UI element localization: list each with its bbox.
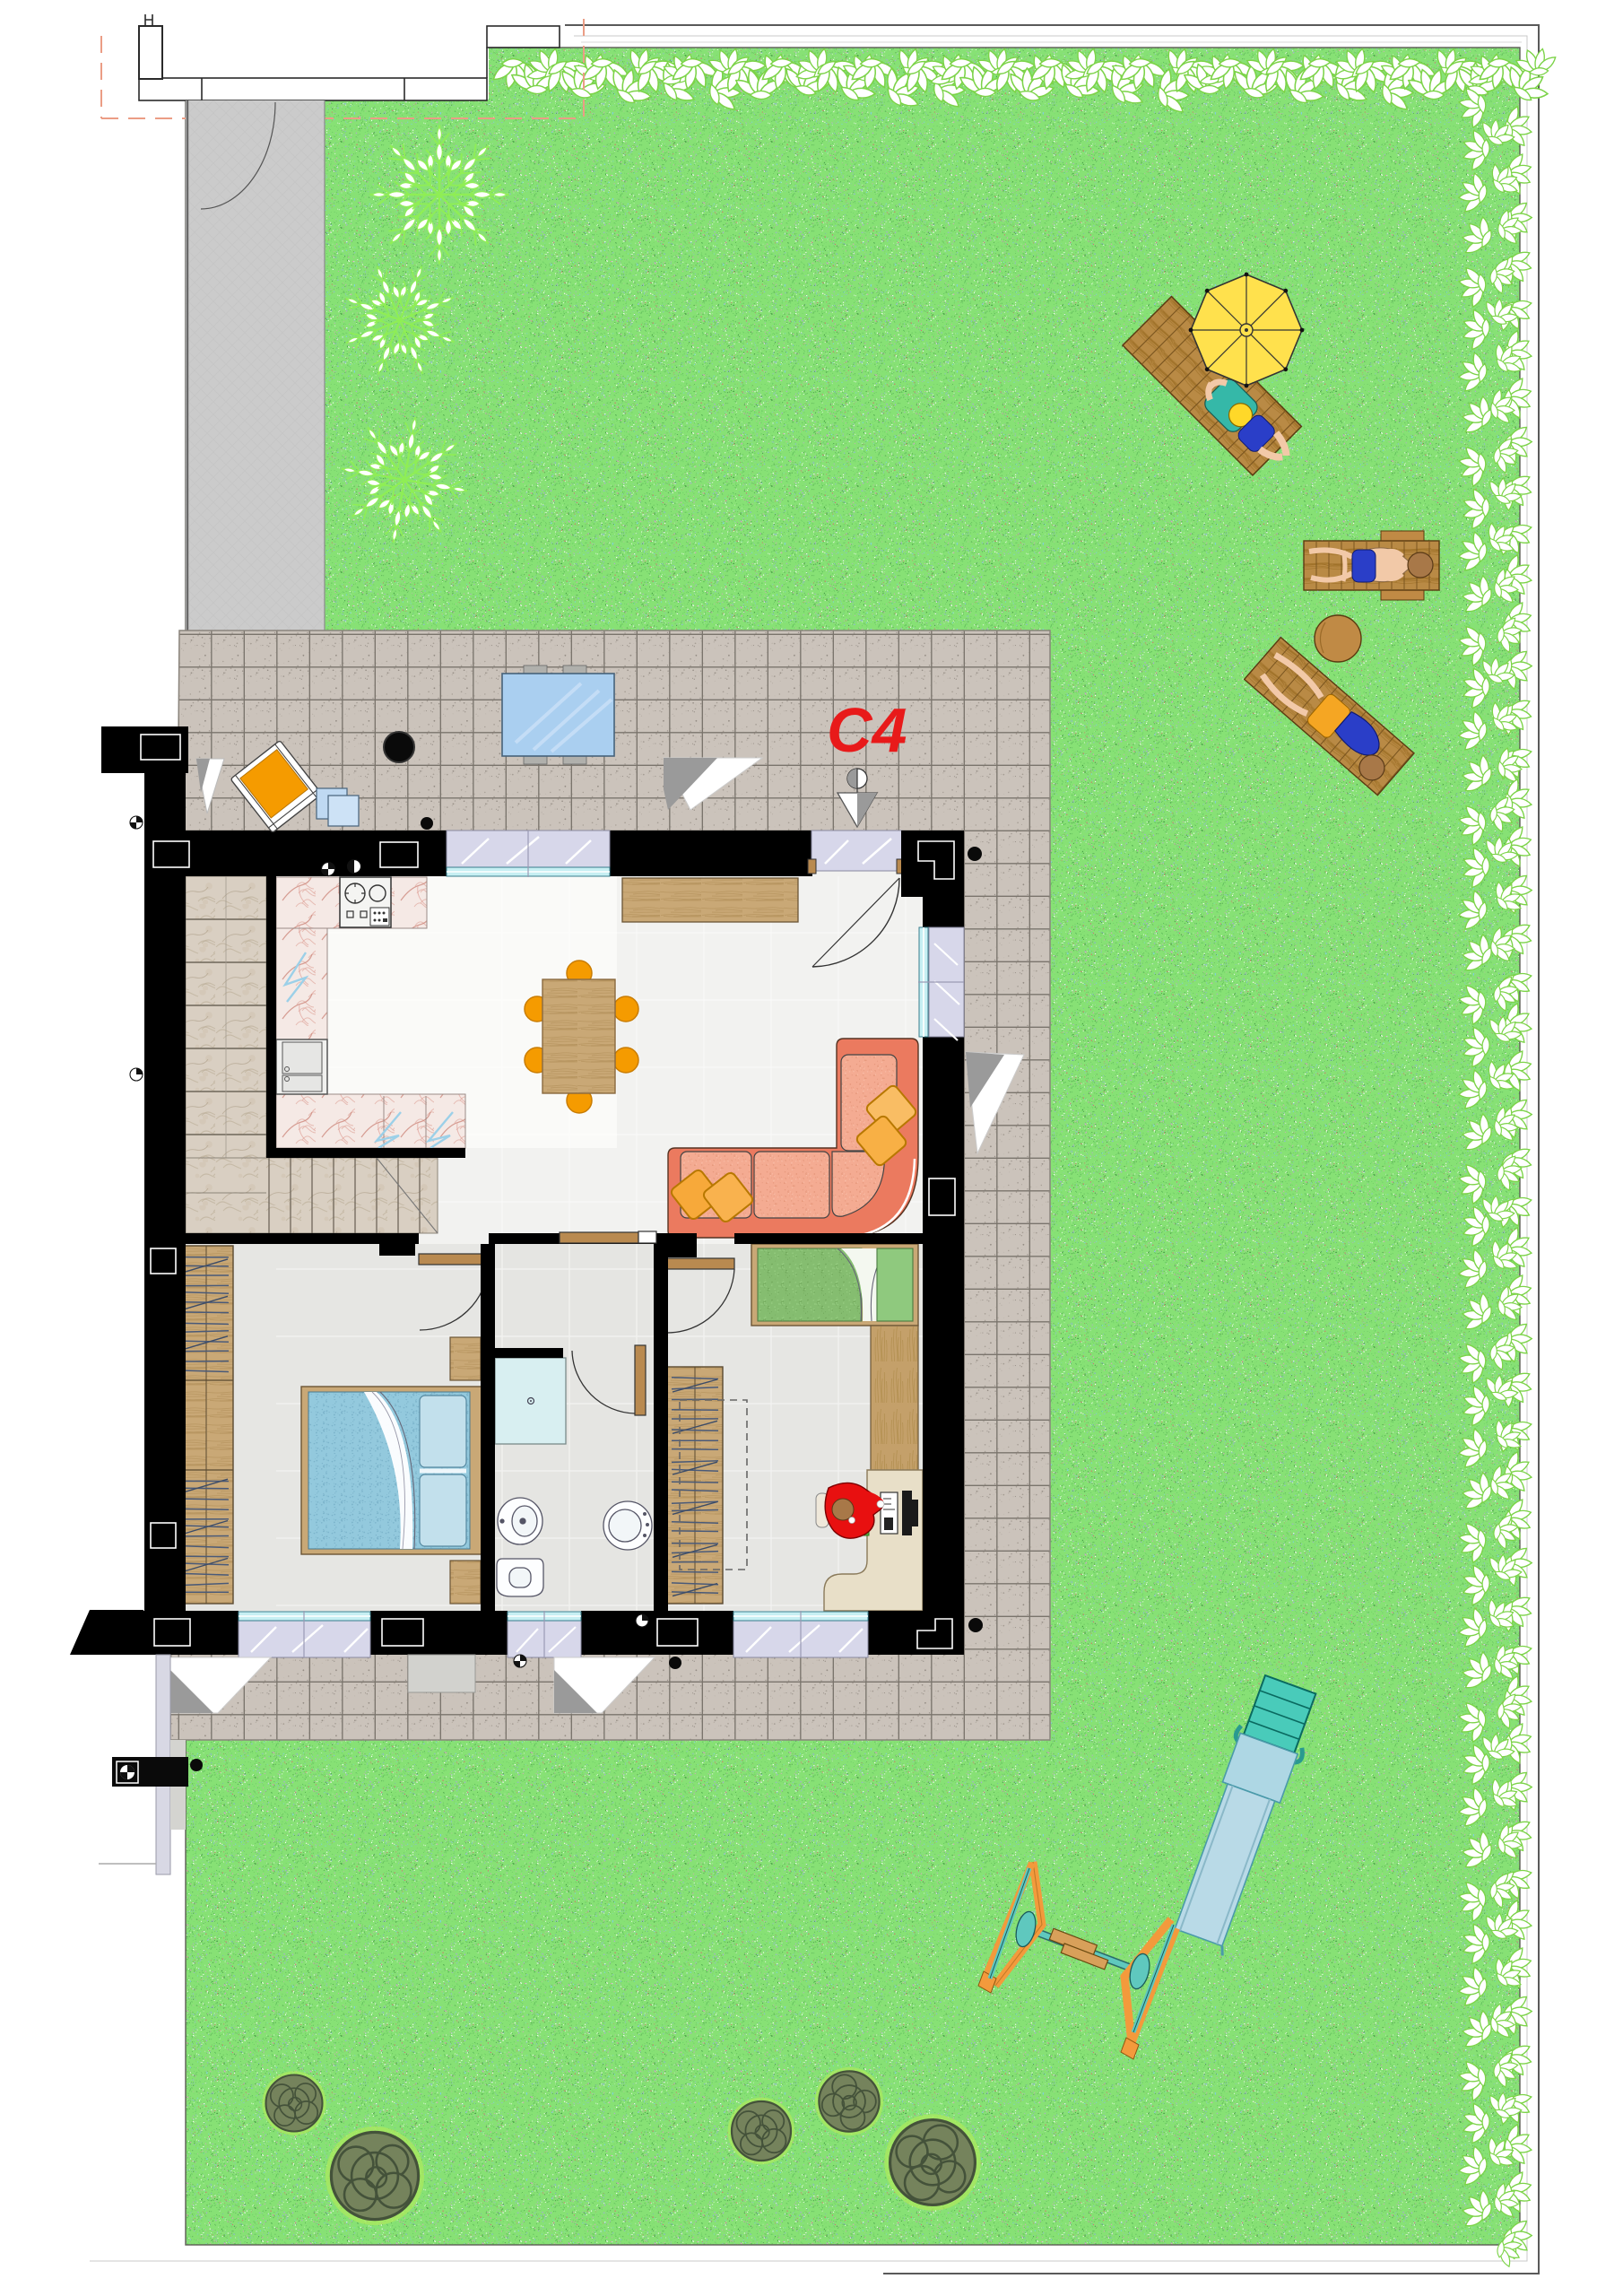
svg-text:C4: C4 bbox=[827, 695, 907, 765]
